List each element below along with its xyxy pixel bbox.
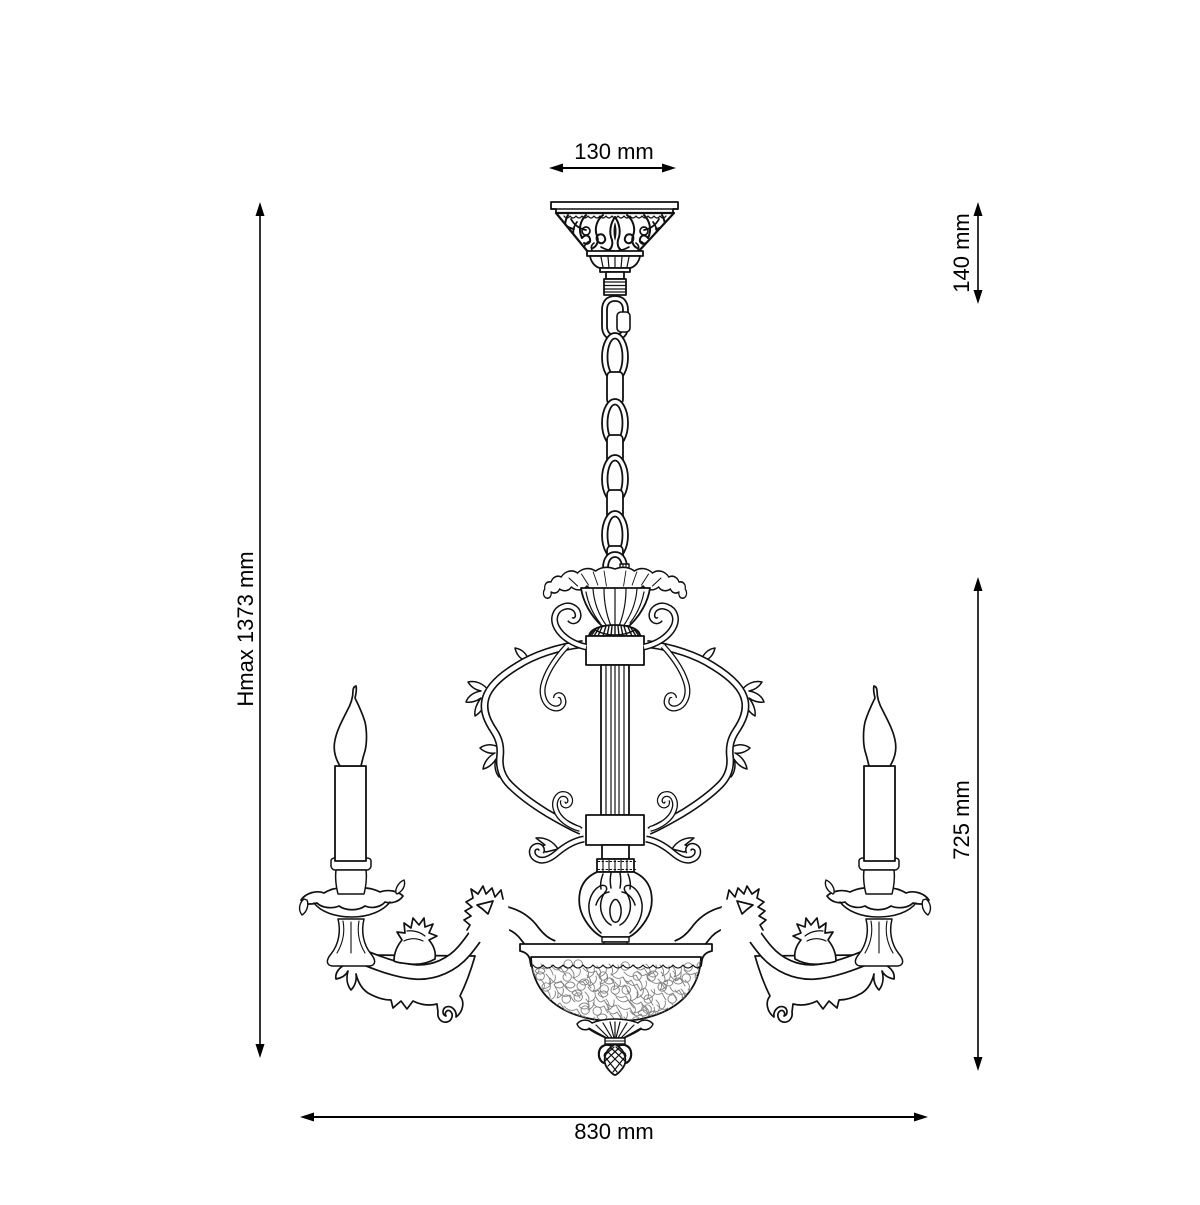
- svg-text:830 mm: 830 mm: [574, 1119, 653, 1144]
- svg-text:130 mm: 130 mm: [574, 139, 653, 164]
- svg-text:725 mm: 725 mm: [949, 780, 974, 859]
- svg-text:Hmax 1373 mm: Hmax 1373 mm: [233, 551, 258, 706]
- svg-text:140 mm: 140 mm: [949, 213, 974, 292]
